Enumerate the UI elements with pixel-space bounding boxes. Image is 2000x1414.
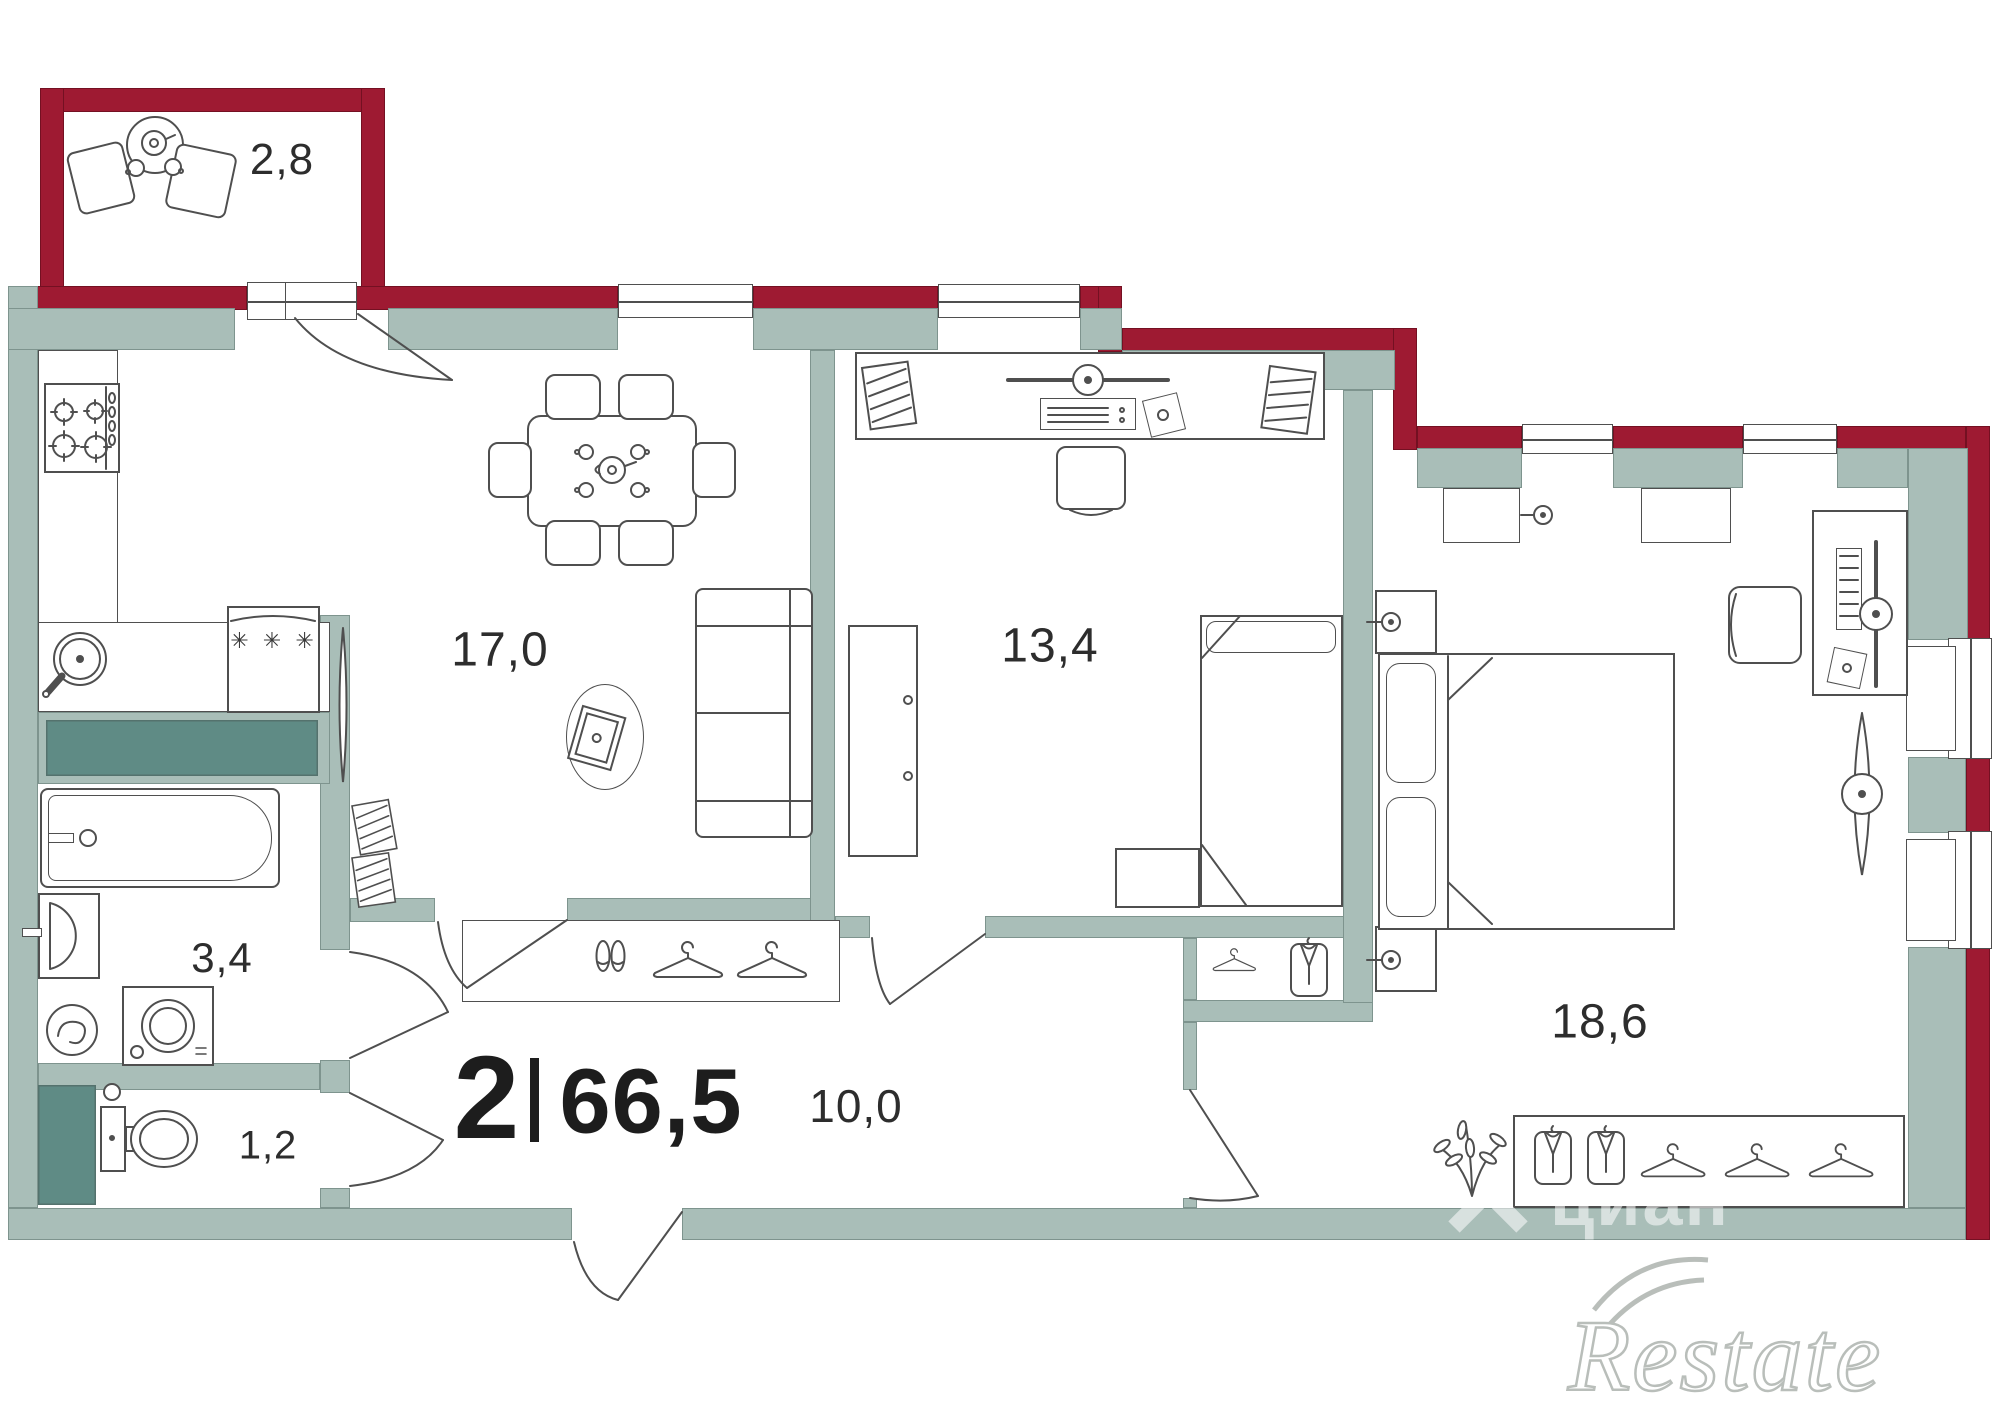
fridge — [227, 606, 320, 713]
wall-inner — [1417, 448, 1522, 488]
wall-top — [1122, 328, 1417, 352]
window-bedroom-top-1 — [1522, 424, 1613, 454]
wall-hall-living — [567, 898, 835, 922]
room-label-wc: 1,2 — [239, 1124, 298, 1169]
balcony-window — [247, 282, 287, 320]
balcony-chair — [164, 142, 238, 219]
wall-right-inner — [1908, 947, 1966, 1208]
wall-top — [355, 286, 618, 310]
toilet-tank — [100, 1106, 126, 1172]
window-living — [618, 284, 753, 318]
sconce-icon — [1521, 506, 1552, 524]
office-chair — [1056, 446, 1126, 510]
dining-table — [527, 415, 697, 527]
wall-bedroom-hall — [1183, 1022, 1197, 1090]
watermark-restate: Restate — [1520, 1252, 2000, 1414]
wall-inner — [753, 308, 938, 350]
wall-room-bottom — [985, 916, 1373, 938]
restate-logo-text: Restate — [1567, 1300, 1882, 1413]
wall-bedroom-hall — [1183, 1198, 1197, 1208]
suit-icon — [1291, 938, 1327, 996]
keyboard — [1836, 548, 1862, 630]
bathtub-inner — [48, 795, 272, 881]
wall-inner — [1080, 308, 1122, 350]
room-label-room: 13,4 — [1001, 619, 1098, 674]
wc-shaft — [38, 1085, 96, 1205]
bath-tap — [48, 833, 74, 843]
single-bed — [1200, 615, 1343, 907]
balcony-door-block — [285, 282, 357, 320]
washing-machine — [122, 986, 214, 1066]
bedroom-door — [1190, 1090, 1258, 1201]
wall-balcony-right — [361, 88, 385, 302]
summary-rooms-count: 2 — [454, 1030, 521, 1166]
wall-bathroom — [320, 1188, 350, 1208]
wall-inner — [1837, 448, 1908, 488]
ventilation-shaft — [46, 720, 318, 776]
sink-tap — [22, 928, 42, 937]
wall-closet-left — [1183, 938, 1197, 1000]
wall-bottom — [8, 1208, 572, 1240]
hanger-icon — [1213, 949, 1255, 971]
wall-step — [1393, 328, 1417, 450]
room-label-bedroom: 18,6 — [1551, 995, 1648, 1050]
dining-chair — [692, 442, 736, 498]
wall-right — [1966, 426, 1990, 640]
wall-top — [753, 286, 938, 310]
wc-door — [350, 1093, 443, 1186]
room-label-bathroom: 3,4 — [191, 934, 252, 982]
dining-chair — [488, 442, 532, 498]
summary-total-area: 66,5 — [559, 1050, 742, 1155]
desk-chair — [1728, 586, 1802, 664]
wardrobe-room — [848, 625, 918, 857]
wall-living-room — [810, 350, 835, 922]
cabinet — [1443, 488, 1520, 543]
summary-separator — [530, 1058, 539, 1142]
keyboard — [1040, 398, 1136, 430]
cian-chevron-icon — [1440, 1161, 1536, 1241]
room-label-living: 17,0 — [451, 623, 548, 678]
dining-chair — [545, 520, 601, 566]
room-door — [872, 934, 985, 1004]
mirror-table-icon — [1842, 713, 1882, 875]
dining-chair — [545, 374, 601, 420]
dining-chair — [618, 374, 674, 420]
wall-inner — [1613, 448, 1743, 488]
shoe-rack-icon — [352, 800, 397, 855]
window-niche — [1906, 646, 1956, 751]
wall-bottom — [682, 1208, 1966, 1240]
bath-sink — [38, 893, 100, 979]
wall-top — [1613, 426, 1743, 450]
towel-dryer-icon — [47, 1005, 97, 1055]
wall-room-bedroom — [1343, 390, 1373, 1003]
room-label-balcony: 2,8 — [250, 135, 314, 185]
nightstand — [1375, 590, 1437, 654]
room-label-hall: 10,0 — [809, 1079, 903, 1133]
wall-top — [1837, 426, 1966, 450]
wall-right — [1966, 757, 1990, 833]
window-niche — [1906, 839, 1956, 941]
floor-plan: 2,8 17,0 13,4 18,6 3,4 1,2 10,0 ✳ ✳ ✳ 2 … — [0, 0, 2000, 1414]
wall-closet-bottom — [1183, 1000, 1373, 1022]
wall-top — [1417, 426, 1522, 450]
bathroom-door — [350, 952, 448, 1058]
wall-right — [1966, 947, 1990, 1240]
wall-room-bottom — [835, 916, 870, 938]
watermark-cian: циан — [1440, 1160, 1730, 1242]
wall-inner — [388, 308, 618, 350]
coffee-table — [566, 684, 644, 790]
window-room — [938, 284, 1080, 318]
wall-top — [8, 286, 247, 310]
stove — [44, 383, 120, 473]
wall-bathroom — [320, 1060, 350, 1093]
pillow — [1206, 621, 1336, 653]
window-bedroom-top-2 — [1743, 424, 1837, 454]
fridge-stars: ✳ ✳ ✳ — [230, 628, 318, 654]
wall-balcony-left — [40, 88, 64, 302]
chair-back — [1070, 510, 1112, 515]
entry-door — [574, 1212, 682, 1300]
pillow — [1386, 797, 1436, 917]
nightstand — [1375, 926, 1437, 992]
cabinet — [1641, 488, 1731, 543]
dining-chair — [618, 520, 674, 566]
hall-closet — [462, 920, 840, 1002]
dresser — [1115, 848, 1200, 908]
wall-inner — [8, 308, 235, 350]
sofa — [695, 588, 813, 838]
pillow — [1386, 663, 1436, 783]
wall-corner-pier — [1908, 448, 1968, 640]
wall-hall-living — [350, 898, 435, 922]
wall-right-inner — [1908, 757, 1966, 833]
wall-balcony-top — [40, 88, 385, 112]
wall-left — [8, 286, 38, 1208]
